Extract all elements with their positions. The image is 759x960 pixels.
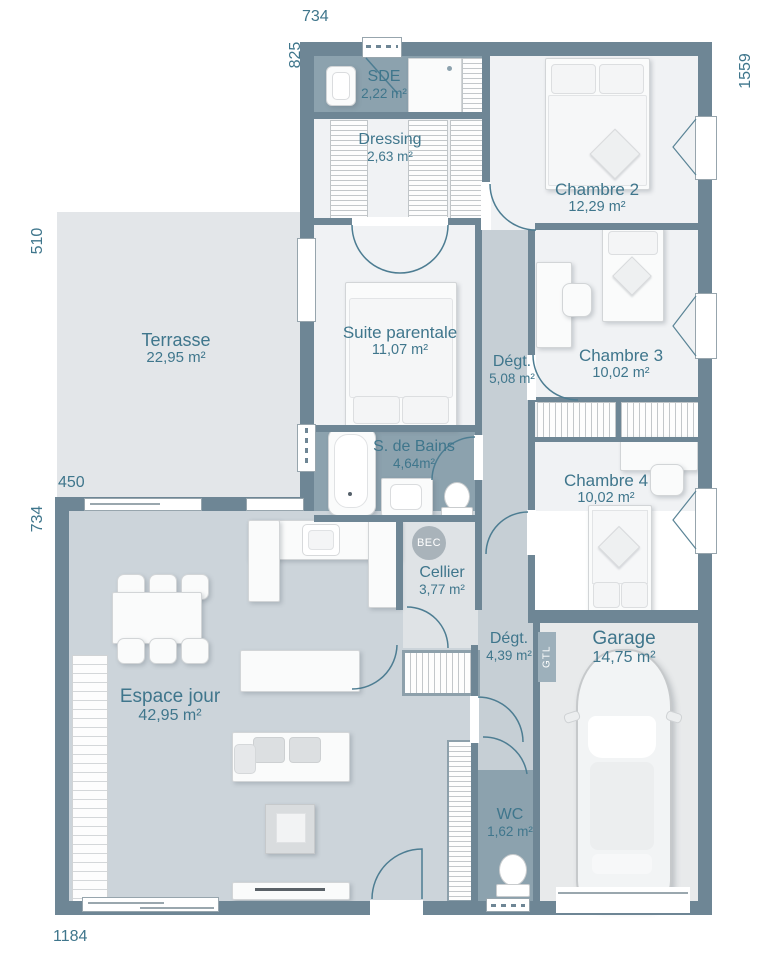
wardrobe bbox=[462, 58, 484, 114]
pillow bbox=[608, 231, 658, 255]
pillow bbox=[402, 396, 449, 424]
window bbox=[695, 293, 717, 359]
shower-drain bbox=[447, 66, 452, 71]
dimension-terrace-width: 450 bbox=[58, 474, 118, 492]
room-label-terrasse: Terrasse22,95 m² bbox=[96, 330, 256, 367]
pillow bbox=[599, 64, 644, 94]
duvet bbox=[548, 95, 647, 186]
closet bbox=[621, 402, 699, 439]
garage-door-line bbox=[558, 892, 688, 894]
vent-dashes bbox=[491, 904, 525, 907]
floor-plan: BEC GTL Terrasse22,95 m² SDE2,22 m² Dres… bbox=[0, 0, 759, 960]
room-label-salle-de-bains: S. de Bains4,64m² bbox=[358, 438, 470, 471]
dimension-lower-left: 734 bbox=[29, 489, 47, 549]
pillow bbox=[593, 582, 620, 608]
wall-segment bbox=[528, 555, 535, 616]
kitchen-island bbox=[240, 650, 360, 692]
sofa-cushion bbox=[289, 737, 321, 763]
wall-segment bbox=[314, 515, 482, 522]
wall-segment bbox=[528, 610, 712, 623]
wall-segment bbox=[55, 497, 69, 915]
window bbox=[297, 238, 316, 322]
car-windshield bbox=[588, 716, 656, 758]
chair bbox=[117, 638, 145, 664]
dimension-right: 1559 bbox=[737, 39, 755, 103]
pillow bbox=[353, 396, 400, 424]
room-label-degagement-1: Dégt.5,08 m² bbox=[478, 353, 546, 386]
garage-door bbox=[556, 887, 690, 913]
wall-segment bbox=[528, 400, 535, 510]
bay-window-rail bbox=[90, 503, 160, 505]
room-label-suite-parentale: Suite parentale11,07 m² bbox=[320, 323, 480, 358]
window bbox=[695, 116, 717, 180]
tv-screen bbox=[255, 888, 325, 891]
room-label-wc: WC1,62 m² bbox=[478, 806, 542, 839]
sofa-pillow bbox=[234, 744, 256, 774]
corridor-degagement-1 bbox=[478, 230, 528, 616]
door-opening bbox=[470, 696, 479, 743]
room-label-dressing: Dressing2,63 m² bbox=[320, 131, 460, 164]
room-label-chambre-2: Chambre 212,29 m² bbox=[527, 180, 667, 215]
door-opening bbox=[474, 435, 483, 480]
wall-segment bbox=[314, 112, 490, 119]
pillow bbox=[551, 64, 596, 94]
toilet-tank bbox=[496, 884, 530, 897]
sofa-cushion bbox=[253, 737, 285, 763]
wall-segment bbox=[471, 645, 478, 901]
wall-segment bbox=[482, 56, 490, 183]
sink-basin bbox=[390, 484, 422, 510]
dimension-bottom: 1184 bbox=[53, 928, 123, 946]
toilet-icon bbox=[499, 854, 527, 886]
car-rear-window bbox=[592, 854, 652, 874]
vent-dashes bbox=[366, 45, 398, 48]
door-opening bbox=[527, 510, 536, 555]
dimension-top: 734 bbox=[302, 8, 348, 26]
wall-segment bbox=[616, 400, 621, 440]
room-label-sde: SDE2,22 m² bbox=[344, 68, 424, 101]
coffee-table-inner bbox=[276, 813, 306, 843]
wall-segment bbox=[314, 425, 482, 432]
car-roof bbox=[590, 762, 654, 850]
door-opening bbox=[481, 182, 491, 230]
bathtub-drain bbox=[348, 492, 352, 496]
room-label-garage: Garage14,75 m² bbox=[554, 628, 694, 667]
tv-unit bbox=[232, 882, 350, 900]
storage-closet bbox=[402, 650, 480, 696]
dimension-terrace-left: 510 bbox=[29, 211, 47, 271]
kitchen-sink-basin bbox=[308, 530, 334, 550]
chair bbox=[149, 638, 177, 664]
window bbox=[695, 488, 717, 554]
bay-window-rail bbox=[140, 907, 214, 909]
door-opening bbox=[352, 217, 448, 226]
wall-segment bbox=[528, 230, 535, 355]
window bbox=[246, 498, 304, 511]
bec-badge: BEC bbox=[412, 526, 446, 560]
room-label-espace-jour: Espace jour42,95 m² bbox=[90, 686, 250, 725]
dining-table bbox=[112, 592, 202, 644]
room-label-degagement-2: Dégt.4,39 m² bbox=[475, 630, 543, 663]
closet bbox=[537, 402, 618, 439]
kitchen-counter-left bbox=[248, 520, 280, 602]
bay-window-rail bbox=[88, 902, 164, 904]
entry-door-opening bbox=[370, 900, 423, 915]
chair bbox=[562, 283, 592, 317]
chair bbox=[181, 638, 209, 664]
wall-segment bbox=[535, 223, 698, 230]
shutter-dashes bbox=[305, 428, 308, 468]
room-label-chambre-3: Chambre 310,02 m² bbox=[551, 346, 691, 381]
room-label-chambre-4: Chambre 410,02 m² bbox=[536, 471, 676, 506]
dimension-upper-left: 825 bbox=[287, 25, 305, 85]
room-label-cellier: Cellier3,77 m² bbox=[398, 564, 486, 597]
bay-window bbox=[82, 897, 219, 912]
pillow bbox=[621, 582, 648, 608]
